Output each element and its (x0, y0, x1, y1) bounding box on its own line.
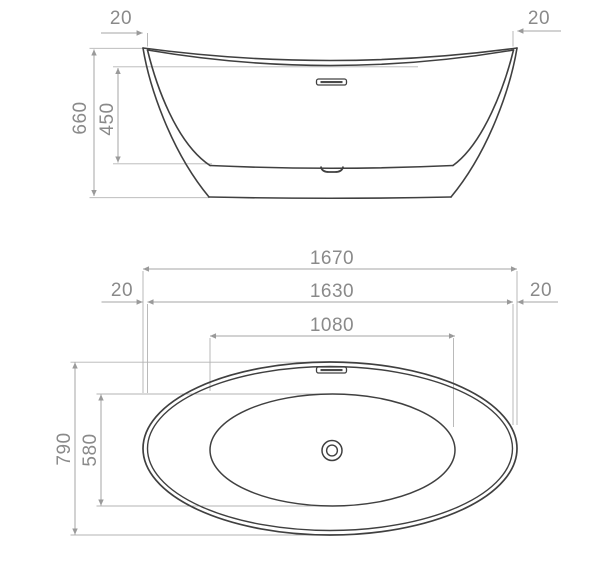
dimension-annotations: 660 450 20 20 1670 (54, 8, 561, 535)
dim-label-overall-height: 660 (70, 101, 91, 134)
dim-side-overall-height: 660 (70, 48, 209, 197)
dim-label-basin-width: 580 (80, 433, 101, 466)
dim-label-internal-depth: 450 (97, 102, 118, 135)
dim-plan-rim-thickness-left: 20 (102, 280, 143, 302)
dim-label-plan-rim-left: 20 (111, 280, 133, 301)
dim-side-internal-depth: 450 (97, 67, 418, 164)
side-elevation-view (143, 48, 517, 198)
dim-plan-rim-thickness-right: 20 (517, 280, 558, 302)
dim-label-overall-width: 790 (54, 432, 75, 465)
dim-label-rim-right: 20 (528, 8, 550, 29)
bathtub-technical-drawing: 660 450 20 20 1670 (0, 0, 600, 581)
dim-plan-inner-rim-length: 1630 (148, 281, 514, 425)
dim-label-inner-rim-length: 1630 (310, 281, 354, 302)
side-overflow-slot-icon (317, 79, 347, 85)
dim-plan-basin-width: 580 (80, 394, 333, 506)
drawing-svg: 660 450 20 20 1670 (0, 0, 600, 581)
plan-overflow-slot-icon (317, 367, 347, 373)
side-rim-outer-curve (143, 48, 517, 61)
side-rim-inner-curve (148, 50, 514, 66)
side-inner-floor-line (210, 166, 453, 169)
dim-label-basin-length: 1080 (310, 315, 354, 336)
dim-label-overall-length: 1670 (310, 248, 354, 269)
dim-label-plan-rim-right: 20 (530, 280, 552, 301)
dim-label-rim-left: 20 (110, 8, 132, 29)
dim-side-rim-thickness-right: 20 (513, 8, 561, 47)
side-inner-wall-left (148, 50, 211, 166)
plan-basin-edge (210, 394, 455, 506)
plan-outer-rim-edge (143, 362, 517, 535)
side-base-line (209, 197, 451, 198)
plan-drain-icon (322, 441, 342, 461)
dim-side-rim-thickness-left: 20 (101, 8, 148, 47)
plan-view (143, 362, 517, 535)
